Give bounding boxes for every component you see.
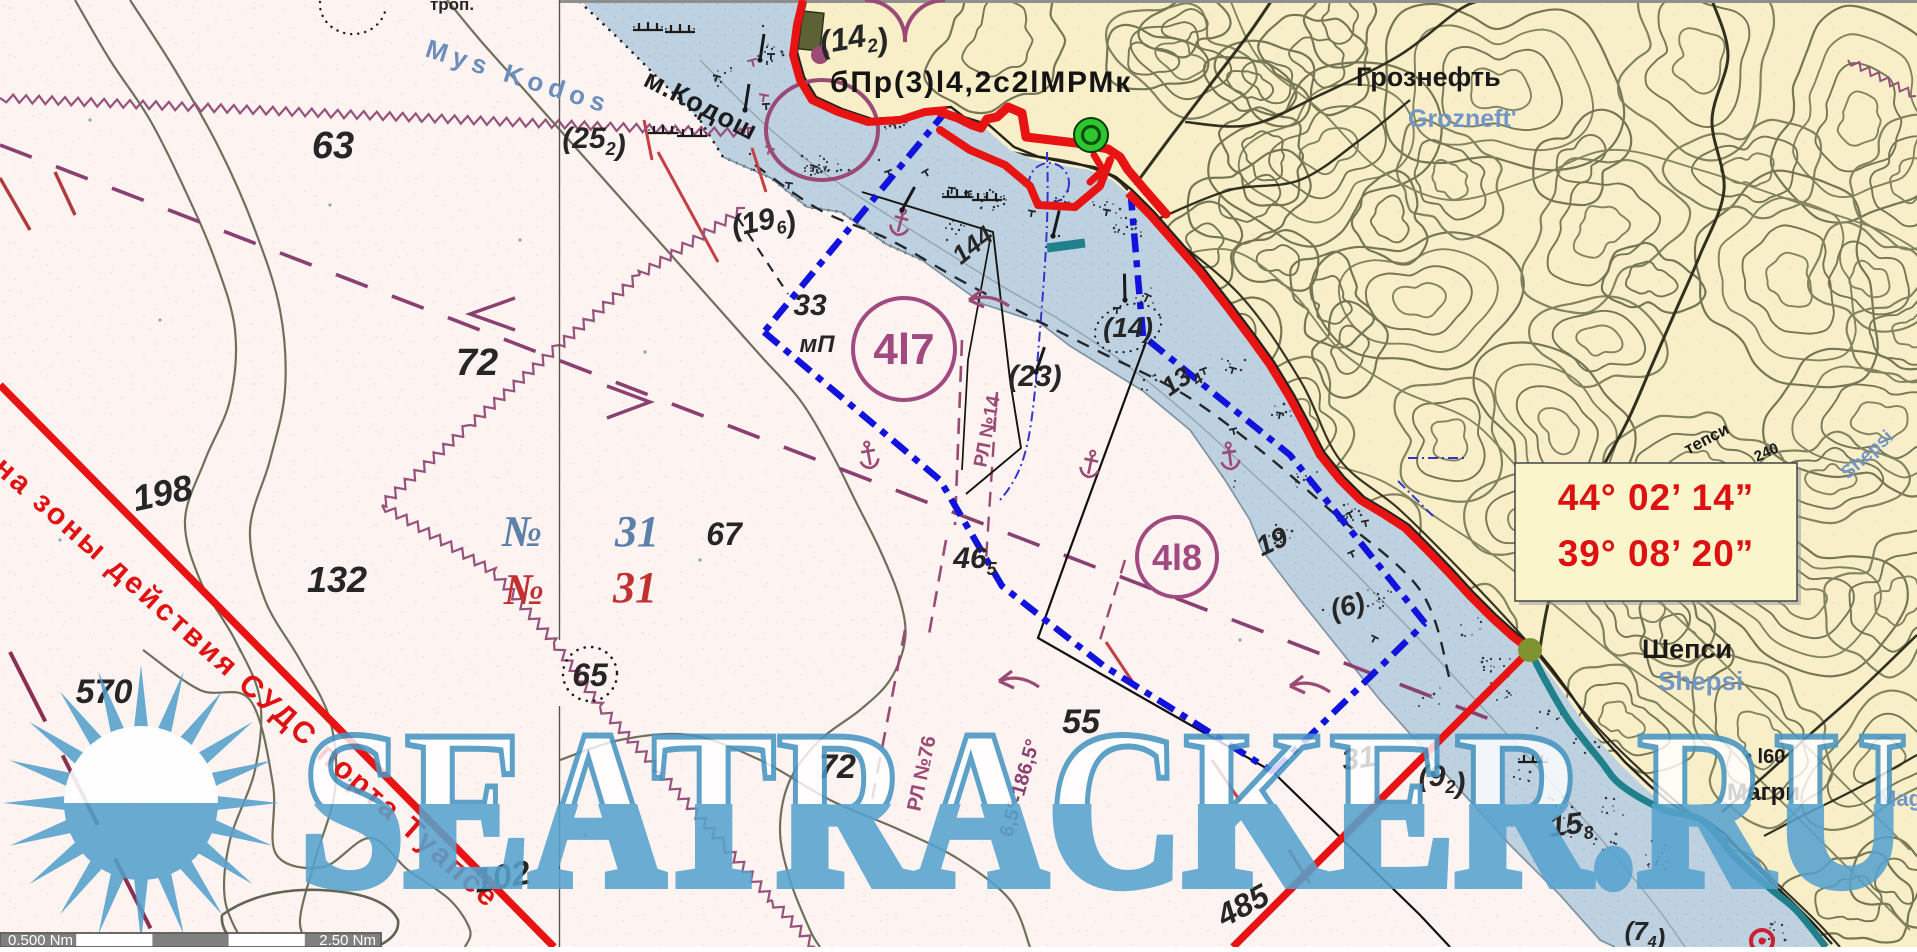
svg-text:(23): (23) (1008, 360, 1061, 393)
svg-text:№: № (503, 565, 544, 614)
svg-text:2.50 Nm: 2.50 Nm (319, 932, 376, 947)
svg-text:бПр(3)l4,2c2lМРМк: бПр(3)l4,2c2lМРМк (830, 66, 1132, 99)
svg-text:мП: мП (799, 331, 835, 358)
svg-text:63: 63 (312, 125, 354, 167)
svg-text:4l8: 4l8 (1152, 537, 1202, 578)
svg-text:(14): (14) (1103, 312, 1153, 343)
svg-text:67: 67 (706, 516, 744, 552)
svg-text:Grozneft': Grozneft' (1408, 105, 1517, 133)
svg-text:0.500 Nm: 0.500 Nm (8, 932, 73, 947)
svg-text:31: 31 (612, 563, 657, 612)
svg-text:39° 08’ 20”: 39° 08’ 20” (1558, 533, 1755, 574)
svg-text:Шепси: Шепси (1642, 634, 1732, 664)
svg-text:44° 02’ 14”: 44° 02’ 14” (1558, 477, 1755, 518)
svg-text:Грознефть: Грознефть (1356, 62, 1501, 92)
svg-text:№: № (501, 507, 542, 556)
svg-text:33: 33 (793, 289, 827, 322)
svg-text:72: 72 (456, 342, 498, 384)
svg-text:4l7: 4l7 (873, 325, 934, 374)
svg-text:31: 31 (614, 507, 659, 556)
svg-text:132: 132 (307, 559, 367, 600)
svg-text:троп.: троп. (430, 0, 474, 14)
